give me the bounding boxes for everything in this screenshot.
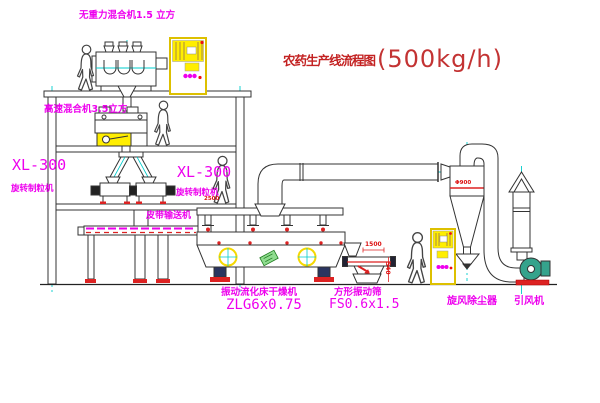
control-cabinet-1 bbox=[170, 38, 206, 94]
title-capacity: (500kg/h) bbox=[377, 45, 503, 73]
label-fan: 引风机 bbox=[514, 297, 544, 307]
fluid-bed-dryer-drawing bbox=[197, 215, 345, 282]
induced-draft-fan-drawing bbox=[516, 258, 550, 285]
exhaust-stack-drawing bbox=[509, 172, 534, 260]
label-high-speed-mixer: 高速混合机3.5立方 bbox=[44, 105, 127, 115]
label-dryer-model: ZLG6x0.75 bbox=[226, 298, 302, 312]
zero-gravity-mixer-drawing bbox=[92, 42, 167, 111]
y-chute bbox=[110, 152, 152, 177]
label-cyclone: 旋风除尘器 bbox=[447, 297, 497, 307]
control-cabinet-2 bbox=[431, 229, 455, 284]
label-granulator-left-model: XL-300 bbox=[12, 158, 66, 173]
label-granulator-left-name: 旋转制粒机 bbox=[11, 185, 54, 194]
label-granulator-mid-model: XL-300 bbox=[177, 165, 231, 180]
diagram-title: 农药生产线流程图 (500kg/h) bbox=[283, 45, 503, 73]
worker-figure-roof bbox=[78, 45, 94, 90]
dim-screen-height: 540 bbox=[384, 262, 390, 275]
worker-figure-level2 bbox=[155, 101, 171, 145]
title-text: 农药生产线流程图 bbox=[283, 50, 375, 69]
dim-cyclone: Φ900 bbox=[455, 181, 471, 187]
dim-screen-length: 1500 bbox=[365, 242, 382, 248]
rotary-granulators-drawing bbox=[91, 177, 175, 204]
pesticide-line-flow-diagram: 农药生产线流程图 (500kg/h) 无重力混合机1.5 立方 高速混合机3.5… bbox=[0, 0, 600, 403]
label-zero-gravity-mixer: 无重力混合机1.5 立方 bbox=[79, 11, 175, 21]
label-belt-conveyor: 皮带输送机 bbox=[146, 212, 191, 221]
label-screen-model: FS0.6x1.5 bbox=[329, 298, 399, 311]
dim-dryer-feed: 2500 bbox=[204, 197, 219, 203]
belt-conveyor-drawing bbox=[78, 226, 198, 283]
worker-figure-ground bbox=[407, 233, 425, 283]
